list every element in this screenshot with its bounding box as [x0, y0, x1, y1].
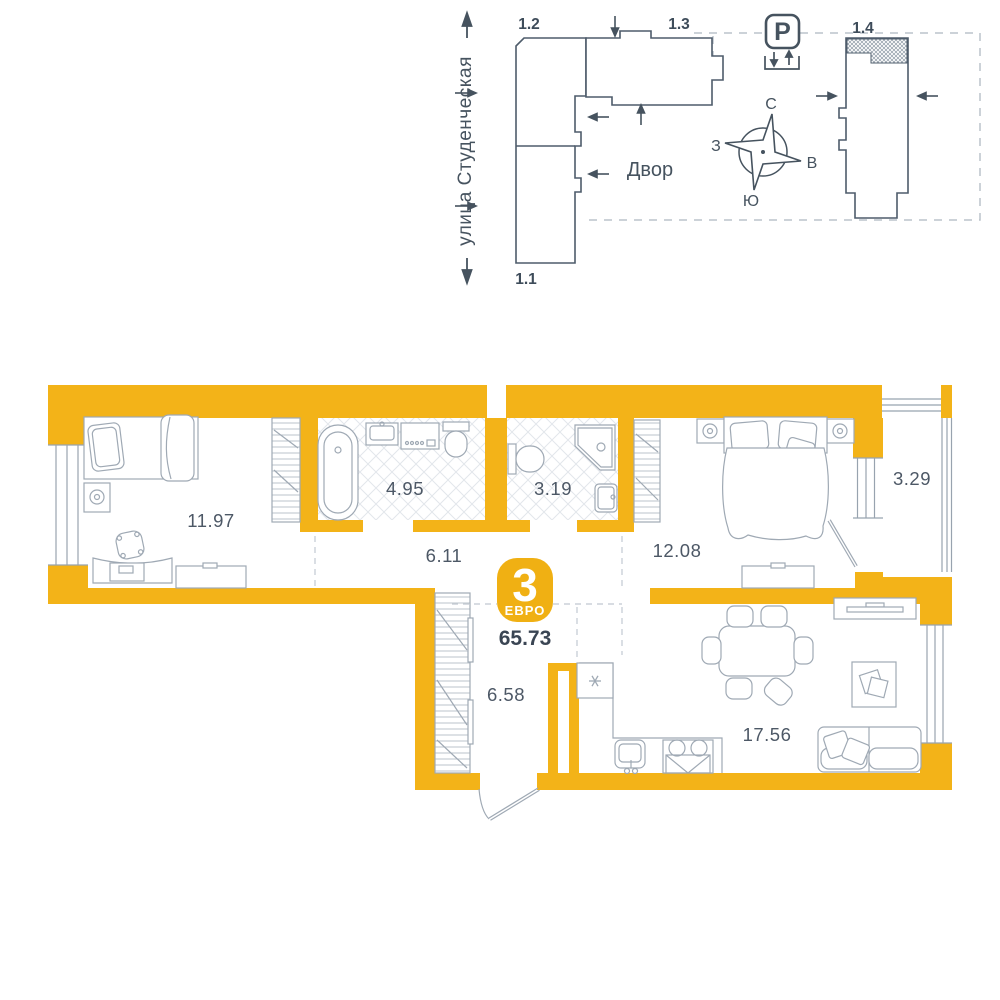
- bedroom-1-furniture: [84, 415, 300, 588]
- site-plan: улица Студенческая: [455, 13, 980, 288]
- courtyard-label: Двор: [627, 159, 673, 181]
- building-1-3-label: 1.3: [668, 16, 690, 33]
- wardrobe: [272, 418, 300, 522]
- coffee-table: [852, 662, 896, 707]
- badge-layout-type: ЕВРО: [505, 603, 546, 618]
- building-1-4-outline: [839, 38, 908, 218]
- plan-canvas: улица Студенческая: [0, 0, 1000, 1000]
- apartment-type-badge: 3 ЕВРО 65.73: [497, 558, 553, 650]
- room-area-hallway: 6.58: [487, 684, 525, 705]
- hallway-furniture: [435, 593, 473, 773]
- nightstand-right: [827, 419, 854, 443]
- toilet-2: [508, 444, 544, 474]
- nightstand-left: [697, 419, 724, 443]
- room-area-kitchen-living: 17.56: [743, 724, 792, 745]
- stove-oven: [663, 740, 713, 773]
- washing-machine: [401, 423, 439, 449]
- hallway-wardrobe: [435, 593, 473, 773]
- kitchen-living-furniture: [577, 598, 921, 774]
- building-1-4-label: 1.4: [852, 20, 874, 37]
- bedroom-2-balcony-window: [853, 458, 883, 518]
- balcony-side-glazing: [942, 418, 952, 572]
- room-area-corridor: 6.11: [426, 545, 463, 566]
- floor-plan: 11.97 4.95 3.19 6.11 12.08 3.29 6.58 17.…: [48, 385, 952, 820]
- nightstand-lamp: [84, 483, 110, 512]
- building-1-2-1-1-outline: [516, 38, 586, 263]
- dresser: [176, 563, 246, 588]
- wardrobe-2: [634, 420, 660, 522]
- small-sink: [595, 484, 617, 512]
- desk: [93, 558, 172, 583]
- total-area-value: 65.73: [499, 627, 552, 650]
- fridge: [577, 663, 613, 698]
- compass-south-label: Ю: [743, 193, 759, 210]
- compass-east-label: В: [807, 155, 818, 172]
- dresser-2: [742, 563, 814, 588]
- tv-stand: [834, 598, 916, 619]
- dining-table: [719, 626, 795, 676]
- entrance-door: [479, 788, 540, 820]
- compass-west-label: З: [711, 138, 721, 155]
- street-label: улица Студенческая: [455, 56, 476, 246]
- bedroom-2-furniture: [634, 417, 854, 588]
- room-area-bedroom-2: 12.08: [653, 540, 702, 561]
- room-area-balcony: 3.29: [893, 468, 931, 489]
- sofa: [818, 727, 921, 772]
- building-1-3-outline: [586, 31, 723, 105]
- toilet-1: [443, 422, 469, 457]
- compass-icon: С Ю З В: [711, 96, 817, 210]
- parking-icon: P: [765, 15, 799, 69]
- balcony-door: [828, 520, 857, 567]
- balcony-top-glazing: [882, 399, 941, 411]
- bathroom-sink: [366, 422, 398, 445]
- kitchen-sink: [615, 740, 645, 774]
- room-area-toilet: 3.19: [534, 478, 572, 499]
- compass-north-label: С: [765, 96, 777, 113]
- room-area-bedroom-1: 11.97: [187, 510, 234, 531]
- bed-single: [84, 415, 198, 481]
- building-1-2-label: 1.2: [518, 16, 540, 33]
- room-area-bathroom: 4.95: [386, 478, 424, 499]
- floorplan-page: улица Студенческая: [0, 0, 1000, 1000]
- bed-double: [723, 417, 829, 540]
- building-1-1-label: 1.1: [515, 271, 537, 288]
- bathtub: [318, 425, 358, 520]
- desk-chair: [115, 530, 146, 561]
- parking-letter: P: [774, 18, 791, 46]
- bathroom-floors: [318, 418, 618, 520]
